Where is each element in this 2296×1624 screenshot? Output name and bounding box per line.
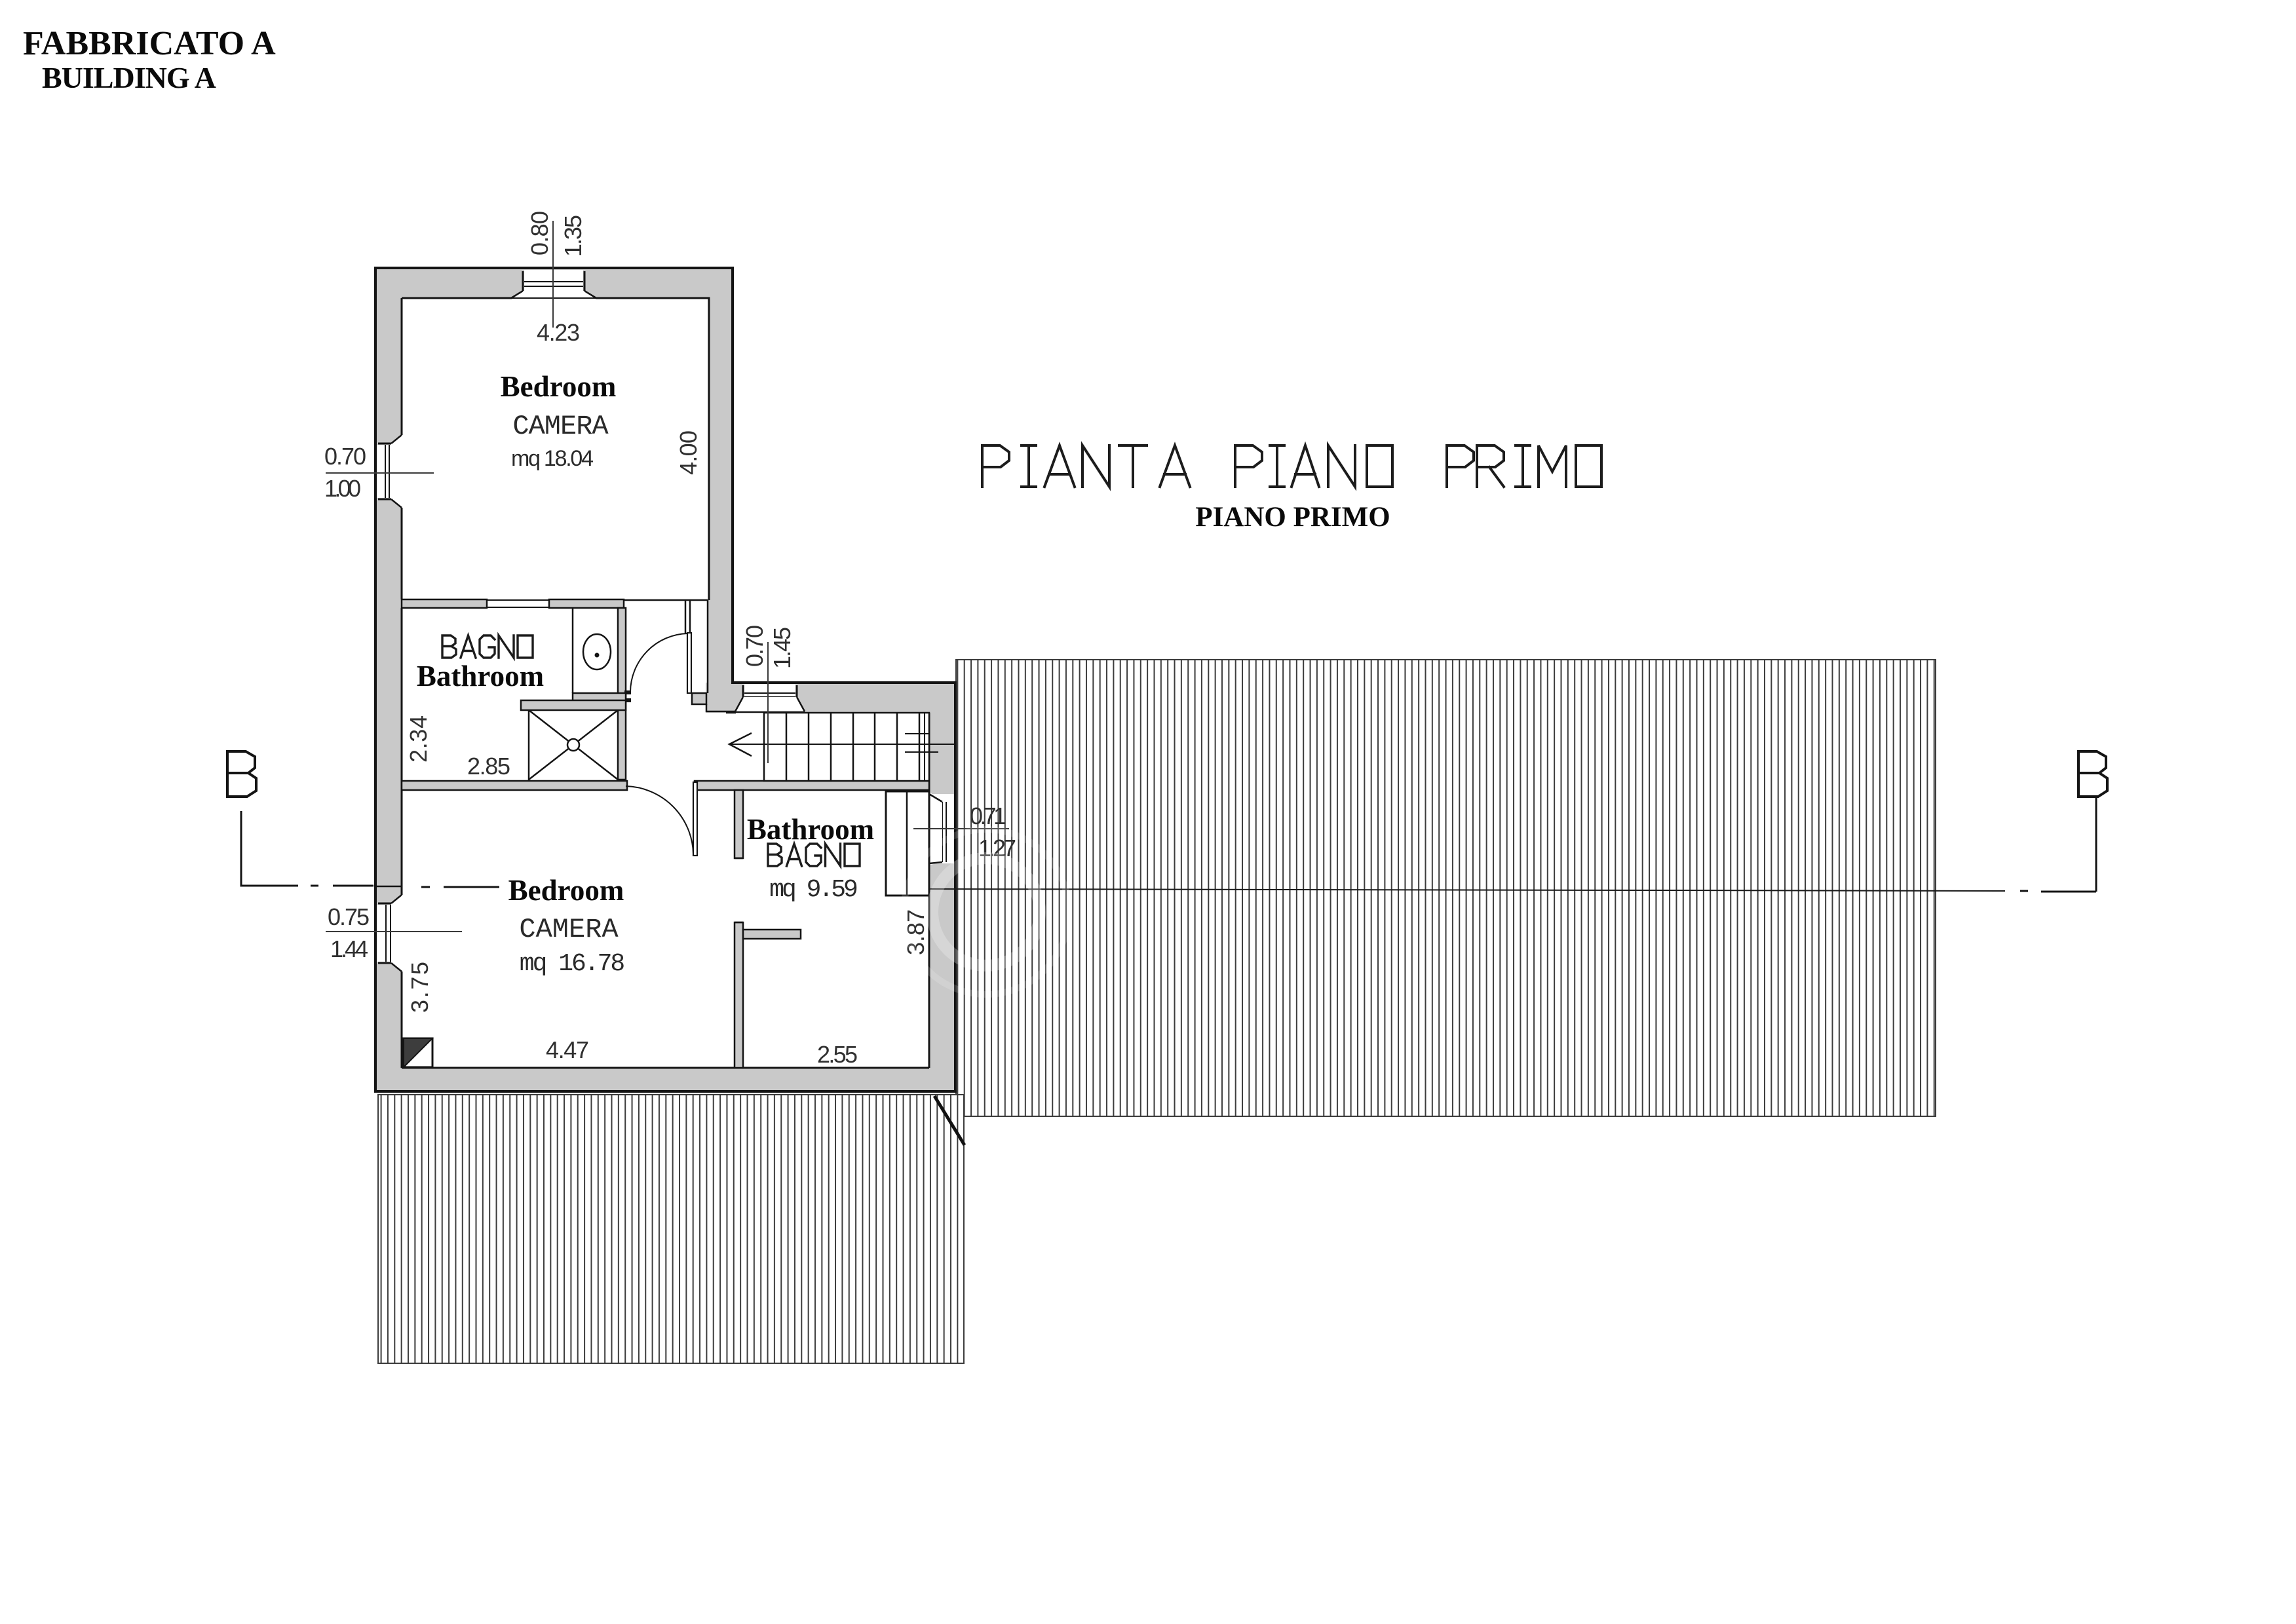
svg-text:mq 9.59: mq 9.59 (769, 876, 857, 904)
svg-text:2.55: 2.55 (817, 1041, 858, 1068)
svg-text:Bathroom: Bathroom (417, 660, 544, 692)
svg-text:1.44: 1.44 (330, 935, 368, 962)
svg-text:0.75: 0.75 (328, 903, 370, 930)
svg-text:0.80: 0.80 (526, 211, 553, 255)
svg-text:0.70: 0.70 (741, 625, 768, 667)
svg-text:Bedroom: Bedroom (508, 874, 624, 907)
svg-text:1.35: 1.35 (560, 215, 586, 257)
svg-text:1.00: 1.00 (324, 475, 361, 502)
svg-text:2.34: 2.34 (405, 715, 432, 763)
svg-text:0.70: 0.70 (324, 443, 366, 470)
svg-text:2.85: 2.85 (467, 753, 510, 780)
svg-text:4.00: 4.00 (675, 430, 702, 475)
svg-text:Bedroom: Bedroom (501, 370, 617, 403)
svg-text:3.75: 3.75 (406, 962, 433, 1013)
svg-text:PIANO PRIMO: PIANO PRIMO (1195, 502, 1390, 533)
svg-text:Bathroom: Bathroom (747, 813, 874, 846)
svg-text:mq 18.04: mq 18.04 (511, 446, 594, 471)
svg-text:CAMERA: CAMERA (512, 411, 609, 442)
svg-text:1.45: 1.45 (769, 627, 795, 669)
svg-text:4.47: 4.47 (546, 1036, 589, 1063)
svg-text:CAMERA: CAMERA (519, 914, 619, 945)
svg-text:FABBRICATO A: FABBRICATO A (23, 25, 276, 62)
svg-text:0.71: 0.71 (970, 803, 1006, 829)
svg-text:4.23: 4.23 (537, 319, 580, 346)
svg-text:mq 16.78: mq 16.78 (520, 950, 624, 978)
svg-text:BUILDING A: BUILDING A (42, 61, 216, 94)
